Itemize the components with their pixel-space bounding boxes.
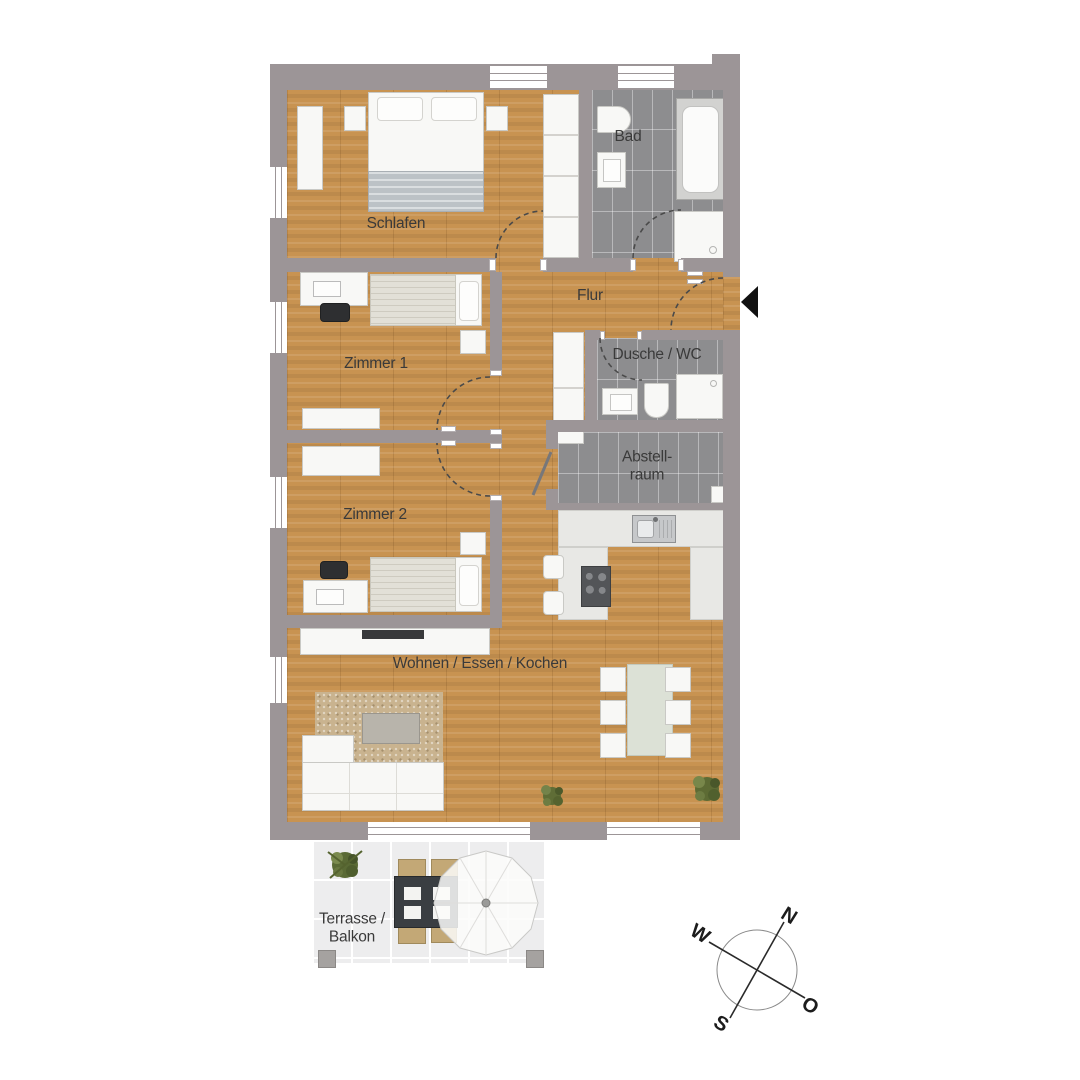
tv bbox=[362, 630, 424, 639]
coffee-table bbox=[362, 713, 420, 744]
dining-chair bbox=[665, 667, 691, 692]
wall bbox=[546, 503, 724, 510]
door-jamb bbox=[637, 331, 642, 340]
wardrobe bbox=[543, 94, 579, 258]
nightstand bbox=[460, 330, 486, 354]
terrace-chair bbox=[431, 927, 457, 943]
window bbox=[490, 66, 547, 88]
window bbox=[270, 302, 287, 353]
sofa-chaise bbox=[302, 735, 354, 764]
compass-south: S bbox=[710, 1011, 733, 1037]
compass-east: O bbox=[798, 993, 823, 1020]
basin bbox=[603, 159, 621, 182]
terrace-chair bbox=[398, 927, 426, 944]
window bbox=[270, 657, 287, 703]
double-bed bbox=[368, 92, 484, 212]
terrace-door bbox=[368, 822, 530, 840]
door-jamb bbox=[490, 370, 502, 376]
blanket bbox=[370, 274, 456, 326]
wall bbox=[585, 330, 597, 422]
room-label-abstellraum: Abstell- raum bbox=[622, 449, 672, 486]
laptop bbox=[313, 281, 341, 297]
door-jamb bbox=[490, 429, 502, 435]
terrasse-line1: Terrasse / bbox=[319, 911, 385, 929]
door-jamb bbox=[490, 443, 502, 449]
door-jamb bbox=[489, 259, 496, 271]
pillow bbox=[459, 565, 479, 606]
hinge-mark bbox=[441, 426, 456, 432]
kitchen-counter-right bbox=[690, 547, 724, 620]
wall bbox=[287, 258, 496, 272]
wall bbox=[546, 489, 558, 503]
wall bbox=[546, 420, 724, 432]
sink-drainboard bbox=[659, 520, 673, 538]
desk-chair bbox=[320, 303, 350, 322]
door-jamb bbox=[600, 331, 605, 340]
entrance-opening bbox=[723, 277, 740, 330]
wall bbox=[490, 272, 502, 375]
single-bed bbox=[370, 557, 482, 612]
door-leaf-mark bbox=[687, 271, 703, 276]
room-label-wohnen: Wohnen / Essen / Kochen bbox=[393, 655, 567, 673]
dining-chair bbox=[665, 733, 691, 758]
compass-north: N bbox=[777, 903, 801, 929]
door-jamb bbox=[630, 259, 636, 271]
laptop bbox=[316, 589, 344, 605]
dining-chair bbox=[665, 700, 691, 725]
terrace-table bbox=[394, 876, 458, 928]
pillow bbox=[431, 97, 477, 121]
bar-stool bbox=[543, 591, 564, 615]
floor-plan: N W S O Schlafen Bad Flur Zimmer 1 Dusch… bbox=[0, 0, 1080, 1080]
stove bbox=[581, 566, 611, 607]
window bbox=[270, 167, 287, 218]
pillow bbox=[459, 281, 479, 321]
door-leaf-mark bbox=[687, 279, 703, 284]
sink-basin bbox=[637, 520, 654, 538]
door-jamb bbox=[678, 259, 684, 271]
room-label-zimmer1: Zimmer 1 bbox=[344, 355, 408, 373]
nightstand bbox=[486, 106, 508, 131]
bathtub bbox=[676, 98, 724, 200]
room-label-bad: Bad bbox=[615, 128, 642, 146]
blanket bbox=[370, 557, 456, 612]
single-bed bbox=[370, 274, 482, 326]
nightstand bbox=[344, 106, 366, 131]
kitchen-sink bbox=[632, 515, 676, 543]
window bbox=[618, 66, 674, 88]
wall bbox=[585, 330, 600, 340]
bar-stool bbox=[543, 555, 564, 579]
desk bbox=[303, 580, 368, 613]
wall bbox=[546, 432, 558, 449]
shower bbox=[676, 374, 723, 419]
wardrobe bbox=[302, 446, 380, 476]
room-label-schlafen: Schlafen bbox=[367, 215, 426, 233]
table-inset bbox=[404, 906, 421, 919]
terrace-post bbox=[318, 950, 336, 968]
sofa bbox=[302, 762, 444, 811]
terrasse-line2: Balkon bbox=[319, 929, 385, 947]
blanket bbox=[368, 171, 484, 212]
bathtub-basin bbox=[682, 106, 719, 193]
wardrobe bbox=[297, 106, 323, 190]
abstellraum-line1: Abstell- bbox=[622, 449, 672, 467]
abstellraum-line2: raum bbox=[622, 467, 672, 485]
room-label-zimmer2: Zimmer 2 bbox=[343, 506, 407, 524]
wall bbox=[543, 258, 592, 272]
wall bbox=[490, 498, 502, 615]
washbasin bbox=[597, 152, 626, 188]
dining-chair bbox=[600, 700, 626, 725]
wall bbox=[287, 615, 502, 628]
wall bbox=[681, 258, 724, 272]
wall bbox=[592, 258, 633, 272]
entrance-arrow bbox=[741, 286, 758, 318]
terrace-post bbox=[526, 950, 544, 968]
toilet bbox=[644, 383, 669, 418]
dining-chair bbox=[600, 733, 626, 758]
window bbox=[270, 477, 287, 528]
hinge-mark bbox=[441, 440, 456, 446]
door-jamb bbox=[540, 259, 547, 271]
wall bbox=[642, 330, 724, 340]
shower-drain bbox=[709, 246, 717, 254]
pillow bbox=[377, 97, 423, 121]
room-label-flur: Flur bbox=[577, 287, 603, 305]
table-inset bbox=[433, 887, 450, 900]
compass-west: W bbox=[686, 920, 714, 949]
room-label-terrasse: Terrasse / Balkon bbox=[319, 911, 385, 948]
table-inset bbox=[404, 887, 421, 900]
basin bbox=[610, 394, 632, 411]
door-jamb bbox=[490, 495, 502, 501]
window bbox=[607, 822, 700, 840]
washbasin bbox=[602, 388, 638, 415]
table-inset bbox=[433, 906, 450, 919]
wall bbox=[579, 88, 592, 258]
exterior-wall-right bbox=[723, 54, 740, 840]
shower bbox=[674, 211, 724, 262]
desk bbox=[300, 272, 368, 306]
nightstand bbox=[460, 532, 486, 555]
wall bbox=[287, 430, 490, 443]
shower-drain bbox=[710, 380, 717, 387]
compass: N W S O bbox=[686, 903, 822, 1037]
room-label-dusche-wc: Dusche / WC bbox=[612, 346, 701, 364]
faucet bbox=[653, 517, 658, 522]
wardrobe bbox=[302, 408, 380, 429]
desk-chair bbox=[320, 561, 348, 579]
dining-chair bbox=[600, 667, 626, 692]
